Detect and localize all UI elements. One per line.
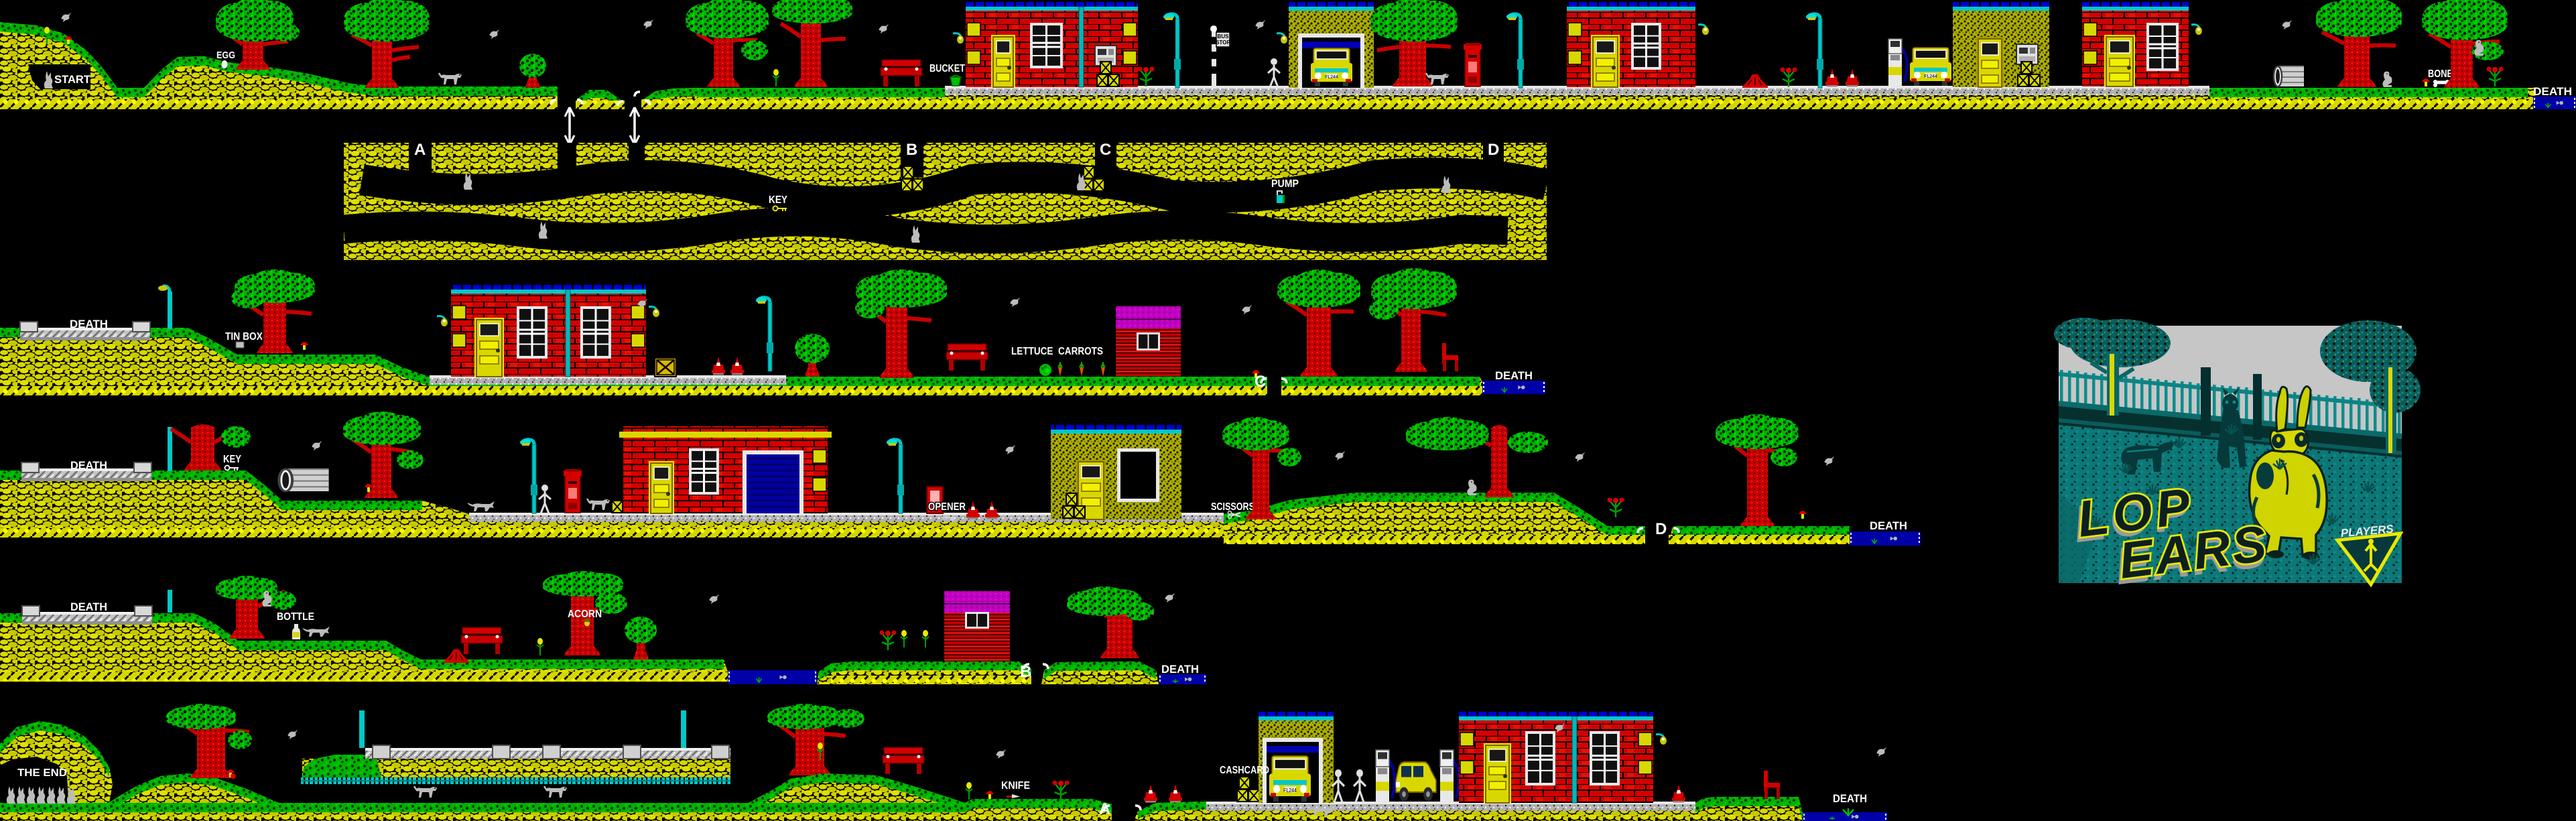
svg-text:DEATH: DEATH [1495, 369, 1533, 382]
svg-text:START: START [54, 73, 91, 86]
svg-text:ACORN: ACORN [568, 609, 602, 620]
svg-text:CASHCARD: CASHCARD [1220, 765, 1269, 776]
svg-text:BONE: BONE [2428, 68, 2453, 80]
svg-text:C: C [1100, 141, 1111, 159]
svg-text:DEATH: DEATH [70, 459, 107, 472]
svg-text:BUCKET: BUCKET [929, 63, 965, 74]
svg-text:LETTUCE CARROTS: LETTUCE CARROTS [1011, 346, 1103, 357]
svg-text:DEATH: DEATH [1833, 792, 1867, 805]
svg-text:EGG: EGG [216, 50, 235, 61]
svg-text:A: A [414, 141, 426, 159]
svg-text:DEATH: DEATH [70, 318, 108, 330]
svg-text:BOTTLE: BOTTLE [277, 611, 314, 623]
svg-text:KEY: KEY [769, 194, 787, 206]
svg-text:B: B [906, 141, 917, 159]
svg-text:SCISSORS: SCISSORS [1211, 501, 1254, 513]
svg-text:TIN BOX: TIN BOX [225, 331, 263, 342]
svg-text:DEATH: DEATH [70, 601, 107, 613]
svg-text:D: D [1655, 520, 1667, 538]
svg-text:PUMP: PUMP [1271, 178, 1299, 190]
svg-text:D: D [1488, 141, 1499, 159]
svg-text:KNIFE: KNIFE [1001, 780, 1030, 792]
svg-text:DEATH: DEATH [1870, 519, 1907, 532]
svg-text:DEATH: DEATH [1161, 663, 1199, 676]
svg-text:DEATH: DEATH [2533, 85, 2572, 98]
svg-text:OPENER: OPENER [928, 501, 966, 513]
svg-text:KEY: KEY [223, 454, 241, 465]
svg-text:THE END: THE END [17, 767, 67, 779]
